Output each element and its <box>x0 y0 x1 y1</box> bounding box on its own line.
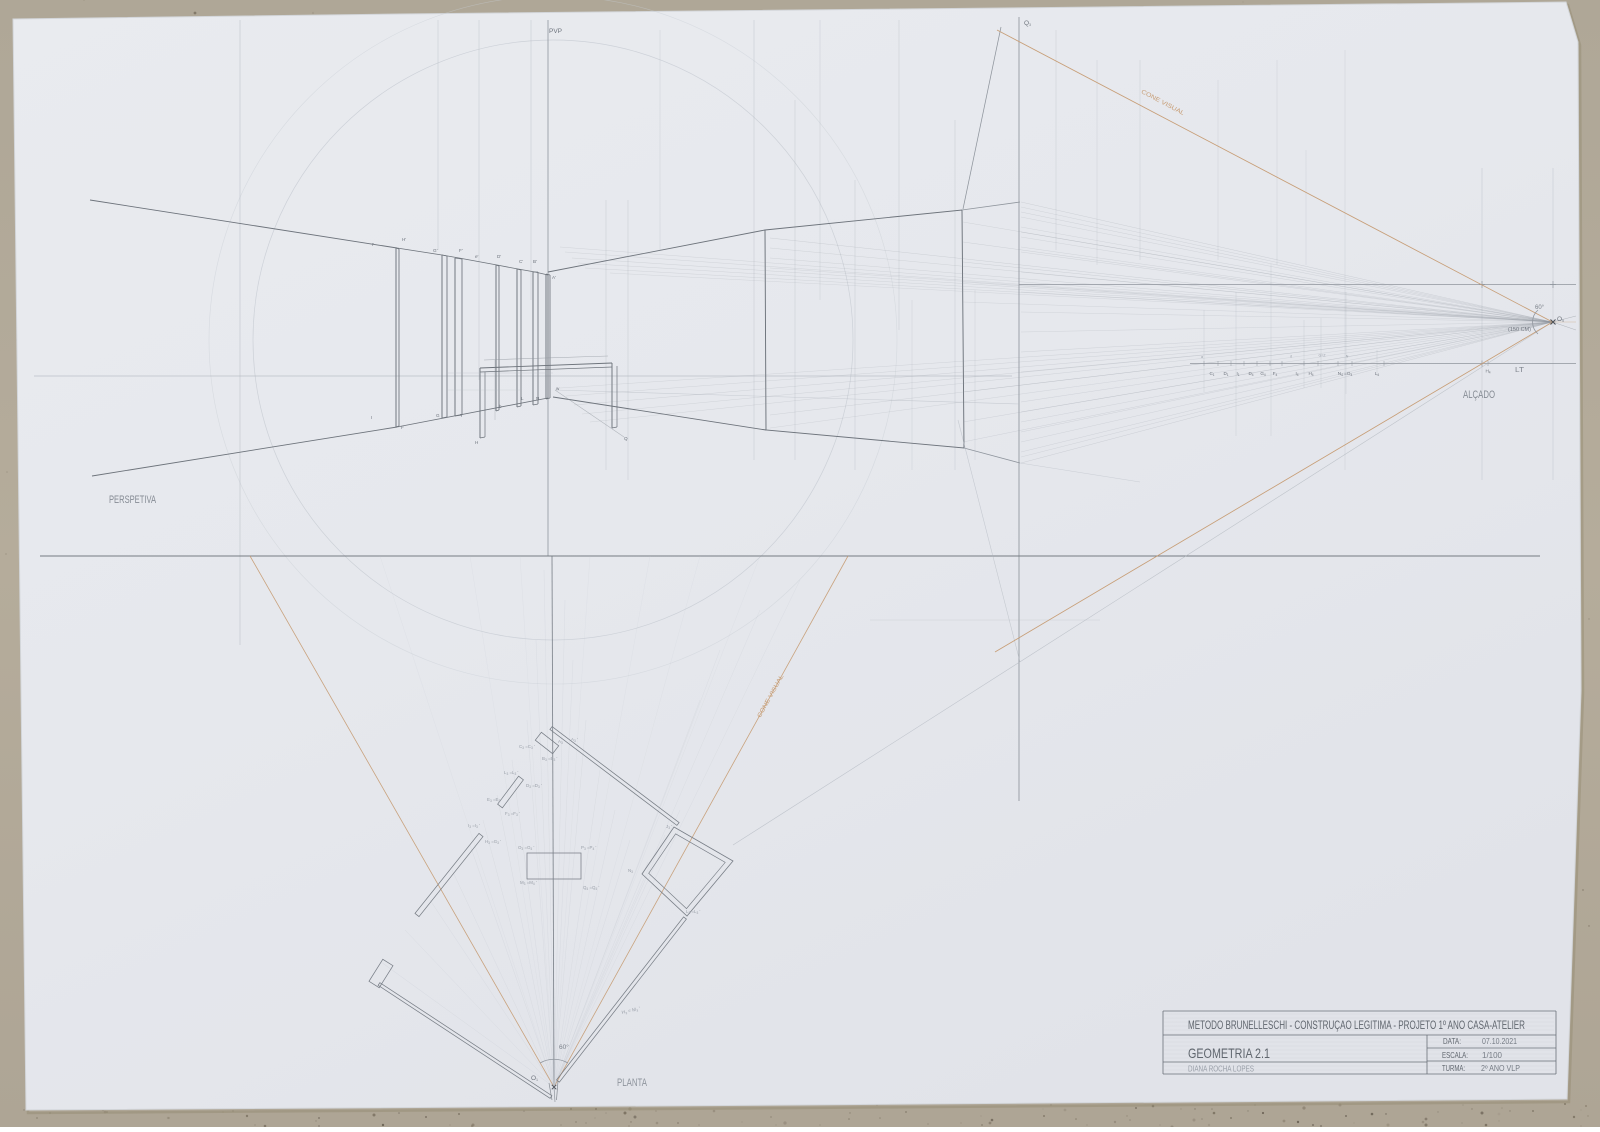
svg-text:G=Z: G=Z <box>1318 354 1326 358</box>
svg-text:H: H <box>475 440 478 445</box>
svg-text:G: G <box>436 413 440 418</box>
svg-text:PERSPETIVA: PERSPETIVA <box>109 494 156 506</box>
svg-text:(150 CM): (150 CM) <box>1508 327 1531 333</box>
svg-text:ALÇADO: ALÇADO <box>1463 389 1495 401</box>
svg-text:F': F' <box>459 248 463 253</box>
svg-text:H': H' <box>402 237 406 242</box>
svg-text:DATA:: DATA: <box>1443 1036 1461 1046</box>
svg-text:PLANTA: PLANTA <box>617 1077 647 1089</box>
svg-text:07.10.2021: 07.10.2021 <box>1482 1037 1517 1046</box>
svg-text:60°: 60° <box>559 1043 569 1051</box>
svg-text:METODO BRUNELLESCHI - CONSTRU: METODO BRUNELLESCHI - CONSTRUÇAO LEGITIM… <box>1188 1018 1525 1032</box>
svg-text:L: L <box>521 396 524 401</box>
svg-text:e': e' <box>475 254 479 259</box>
svg-text:LT: LT <box>1515 367 1525 374</box>
svg-text:PVP: PVP <box>549 28 562 35</box>
svg-text:N: N <box>536 396 539 401</box>
svg-text:Q: Q <box>624 436 628 441</box>
svg-text:I': I' <box>372 242 374 247</box>
svg-text:F: F <box>401 425 404 430</box>
svg-text:G': G' <box>433 248 438 253</box>
svg-text:TURMA:: TURMA: <box>1442 1063 1465 1073</box>
svg-text:I: I <box>371 415 372 420</box>
svg-text:A': A' <box>552 275 556 280</box>
svg-text:DIANA ROCHA LOPES: DIANA ROCHA LOPES <box>1188 1064 1254 1074</box>
svg-text:a: a <box>1201 355 1203 359</box>
svg-text:ESCALA:: ESCALA: <box>1442 1050 1468 1060</box>
svg-text:T: T <box>460 413 463 418</box>
svg-text:D': D' <box>497 254 501 259</box>
svg-text:60°: 60° <box>1535 305 1545 311</box>
svg-text:1/100: 1/100 <box>1482 1051 1503 1060</box>
svg-text:b: b <box>499 404 502 409</box>
svg-text:B': B' <box>533 259 537 264</box>
svg-text:C': C' <box>519 259 523 264</box>
svg-text:d: d <box>1290 355 1292 359</box>
svg-text:2º ANO VLP: 2º ANO VLP <box>1481 1064 1520 1073</box>
svg-text:N: N <box>1346 355 1349 359</box>
svg-text:GEOMETRIA 2.1: GEOMETRIA 2.1 <box>1188 1045 1270 1061</box>
